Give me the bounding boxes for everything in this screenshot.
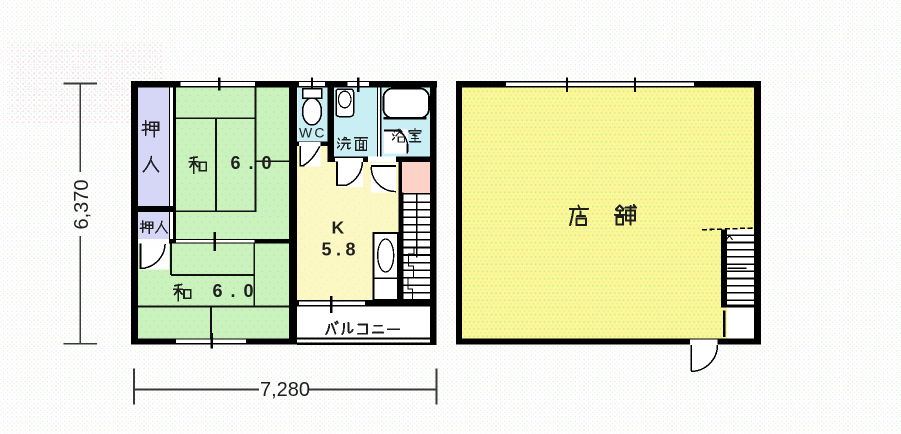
svg-text:WC: WC (299, 125, 327, 141)
svg-text:6.0: 6.0 (231, 153, 280, 173)
svg-text:7,280: 7,280 (260, 379, 310, 401)
svg-text:K: K (332, 218, 345, 238)
svg-text:6.0: 6.0 (213, 281, 262, 301)
svg-text:6,370: 6,370 (71, 179, 93, 229)
svg-text:5.8: 5.8 (322, 240, 361, 260)
